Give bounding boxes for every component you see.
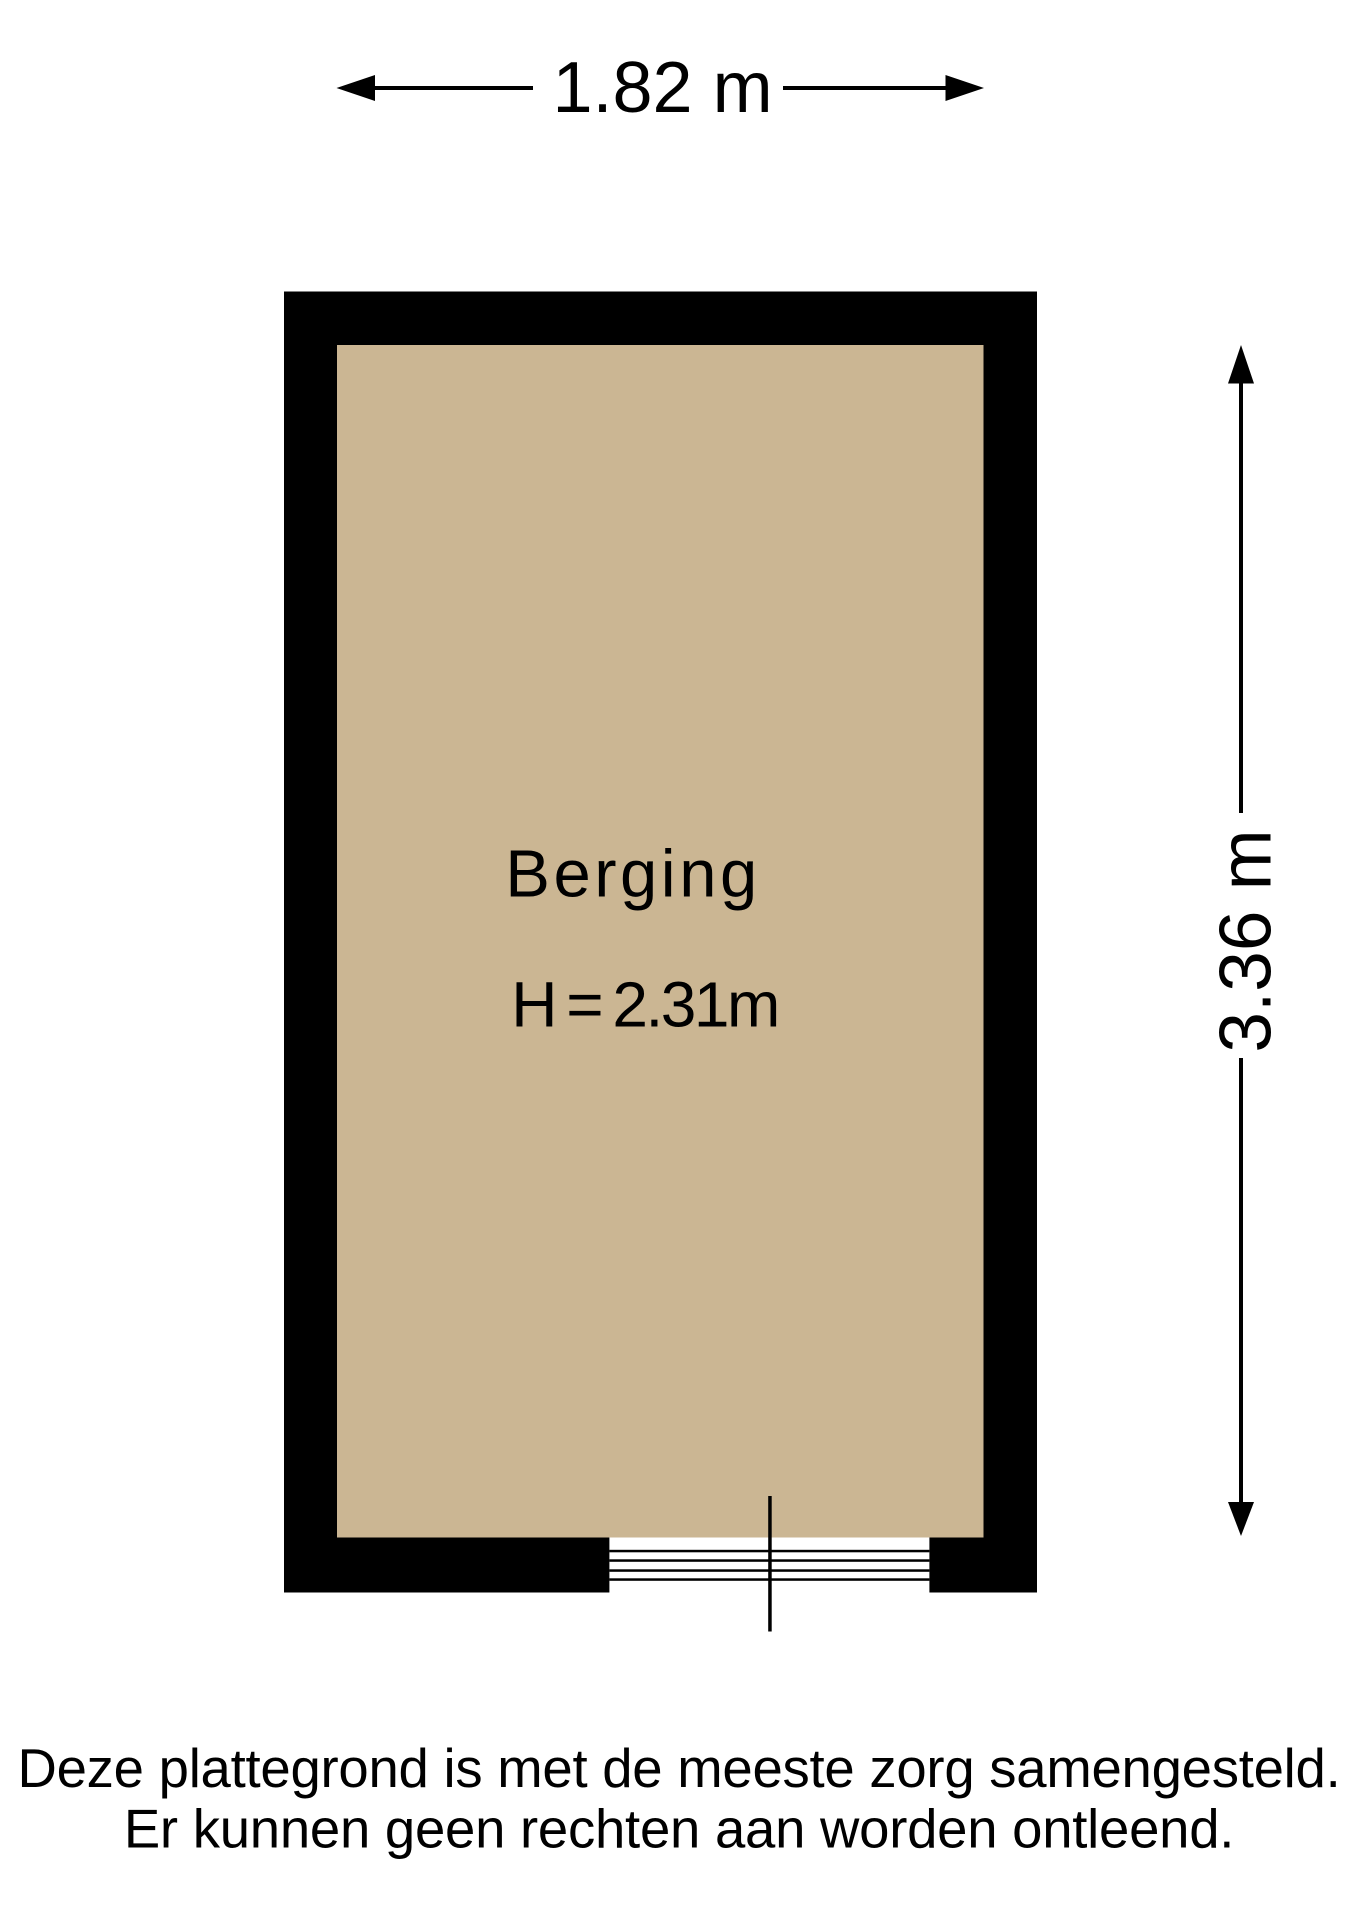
svg-text:Berging: Berging	[505, 837, 760, 912]
svg-text:Er kunnen geen rechten aan wor: Er kunnen geen rechten aan worden ontlee…	[124, 1799, 1234, 1860]
svg-text:H = 2.31m: H = 2.31m	[511, 968, 778, 1040]
svg-text:1.82 m: 1.82 m	[552, 48, 772, 128]
svg-text:Deze plattegrond is met de mee: Deze plattegrond is met de meeste zorg s…	[18, 1738, 1341, 1799]
svg-text:3.36 m: 3.36 m	[1206, 829, 1287, 1052]
